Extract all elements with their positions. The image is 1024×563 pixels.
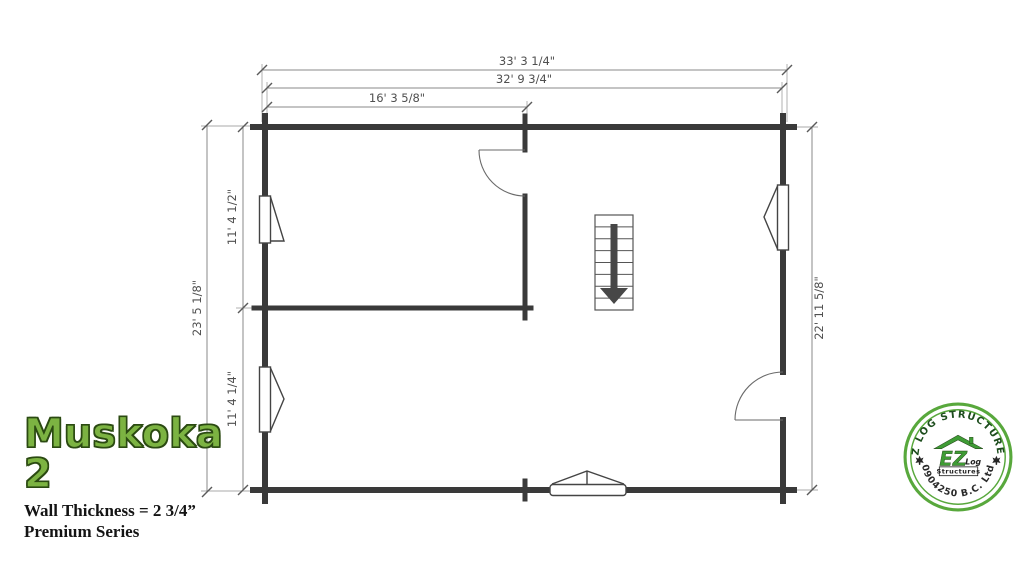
- window-right-icon: [764, 185, 789, 250]
- floorplan-page: 33' 3 1/4" 32' 9 3/4" 16' 3 5/8" 23' 5 1…: [0, 0, 1024, 563]
- window-bottom-icon: [550, 471, 626, 496]
- dim-right-inner: 22' 11 5/8": [812, 276, 826, 340]
- plan-title: Muskoka 2: [24, 414, 254, 494]
- dim-left-overall: 23' 5 1/8": [190, 280, 204, 336]
- window-left-upper-icon: [260, 196, 285, 243]
- logo-structures-text: Structures: [937, 467, 981, 475]
- dim-left-upper-room: 11' 4 1/2": [225, 189, 239, 245]
- series-note: Premium Series: [24, 521, 254, 542]
- dim-top-overall: 33' 3 1/4": [499, 54, 555, 68]
- interior-walls: [254, 116, 531, 499]
- dim-top-left-room: 16' 3 5/8": [369, 91, 425, 105]
- logo-log-text: Log: [965, 457, 981, 466]
- interior-door-icon: [479, 150, 525, 196]
- dim-top-inner: 32' 9 3/4": [496, 72, 552, 86]
- wall-thickness-note: Wall Thickness = 2 3/4”: [24, 500, 254, 521]
- chimney-icon: [969, 437, 973, 443]
- door-swing-arc: [735, 372, 783, 420]
- door-swing-arc: [479, 150, 525, 196]
- staircase: [595, 215, 633, 310]
- dimension-lines: [207, 70, 812, 492]
- window-left-lower-icon: [260, 367, 285, 432]
- title-block: Muskoka 2 Wall Thickness = 2 3/4” Premiu…: [24, 414, 254, 543]
- company-logo-stamp: EZ LOG STRUCTURES 0904250 B.C. Ltd EZ Lo…: [903, 402, 1013, 512]
- right-entry-door-icon: [735, 372, 783, 420]
